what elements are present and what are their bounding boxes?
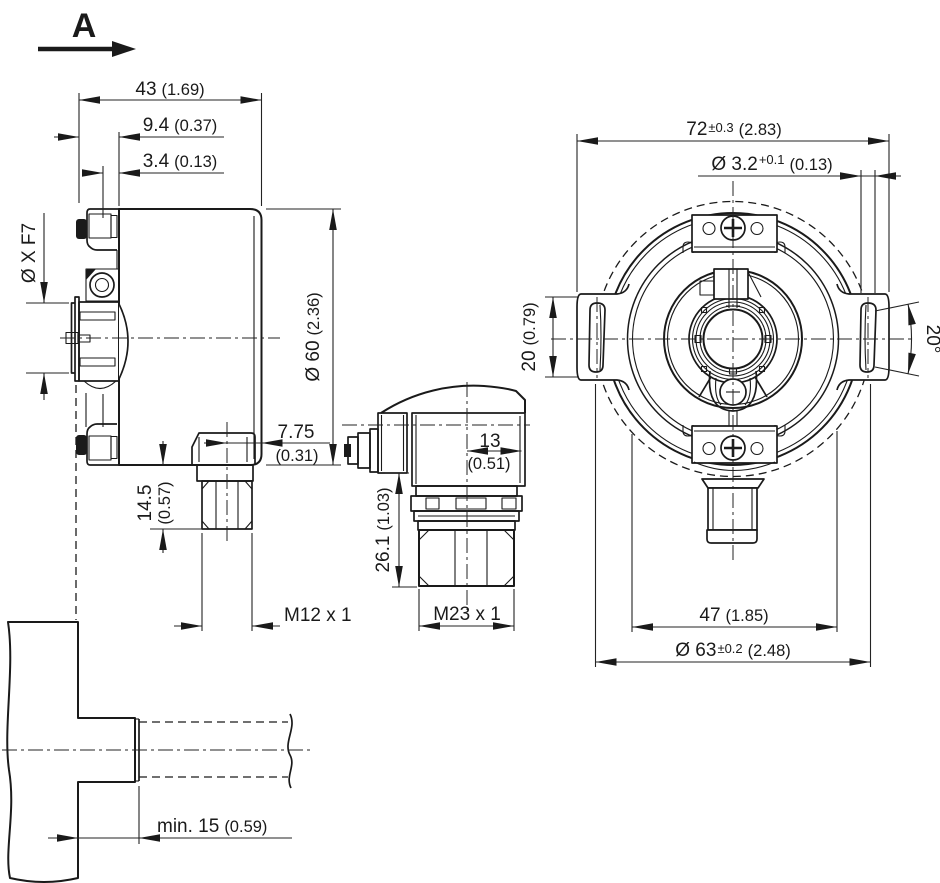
dim-label: 47(1.85) — [699, 605, 768, 626]
view-direction-arrowhead — [112, 41, 136, 57]
dim-label: (0.51) — [467, 455, 510, 473]
m23-connector-view: 13 (0.51) 26.1(1.03) M23 x 1 — [342, 382, 530, 631]
dim-label: Ø 3.2+0.1(0.13) — [711, 152, 832, 175]
dim-housing-width: 43(1.69) — [79, 79, 262, 206]
dim-step-depth: 3.4(0.13) — [82, 151, 224, 218]
dim-slot-length: 20(0.79) — [519, 297, 579, 377]
dim-coupling-height: 26.1(1.03) — [373, 473, 417, 587]
dim-min-mounting-depth: min. 15(0.59) — [48, 786, 292, 844]
body-outline — [119, 209, 262, 465]
dim-m12-thread: M12 x 1 — [174, 533, 352, 631]
side-view-m12-connector — [192, 422, 255, 545]
view-label: A — [72, 7, 97, 45]
side-view: 43(1.69) 9.4(0.37) 3.4(0.13) Ø X F7 — [19, 79, 352, 631]
clamp-plate-bottom — [683, 425, 785, 471]
mounting-wall — [7, 622, 135, 882]
dim-label: 9.4(0.37) — [143, 115, 218, 136]
side-view-dimensions: 43(1.69) 9.4(0.37) 3.4(0.13) Ø X F7 — [19, 79, 352, 631]
dim-label: 7.75 — [278, 422, 315, 443]
dim-label: min. 15(0.59) — [157, 816, 267, 837]
dim-label: 20° — [922, 325, 940, 354]
dim-label: Ø X F7 — [19, 223, 40, 283]
dim-label: M12 x 1 — [284, 605, 352, 626]
dim-label: 43(1.69) — [135, 79, 204, 100]
dim-label: M23 x 1 — [433, 604, 501, 625]
front-view: 72±0.3(2.83) Ø 3.2+0.1(0.13) 20(0.79) — [519, 119, 940, 667]
shaft-break-line — [288, 714, 292, 788]
dim-label: 72±0.3(2.83) — [686, 119, 781, 140]
dim-label: (0.57) — [156, 481, 174, 524]
clamp-element-top — [76, 219, 87, 239]
mounting-detail-view: min. 15(0.59) — [2, 622, 312, 882]
dim-label: 20(0.79) — [519, 302, 540, 371]
hub-bulge — [119, 304, 128, 379]
encoder-dimensional-drawing: A — [0, 0, 940, 883]
dim-label: Ø 60(2.36) — [303, 292, 324, 381]
drawing-page: A — [0, 0, 940, 883]
dim-shaft-diameter: Ø X F7 — [19, 213, 69, 400]
dim-label: 14.5 — [135, 485, 156, 522]
dim-cable-offset: 13 (0.51) — [467, 431, 522, 473]
dim-label: 26.1(1.03) — [373, 487, 394, 572]
dim-label: (0.31) — [275, 447, 318, 465]
view-direction-indicator: A — [38, 7, 136, 57]
clamp-plate-top — [683, 215, 785, 253]
dim-m12-height: 14.5 (0.57) — [135, 441, 206, 553]
dim-label: 3.4(0.13) — [143, 151, 218, 172]
side-view-body — [60, 209, 280, 620]
dim-label: Ø 63±0.2(2.48) — [675, 640, 791, 661]
clamp-screw — [90, 273, 114, 297]
dim-m12-offset: 7.75 (0.31) — [204, 422, 330, 465]
clamp-element-bottom — [76, 435, 87, 455]
dim-label: 13 — [479, 431, 500, 452]
mounting-tab-left — [577, 284, 634, 390]
